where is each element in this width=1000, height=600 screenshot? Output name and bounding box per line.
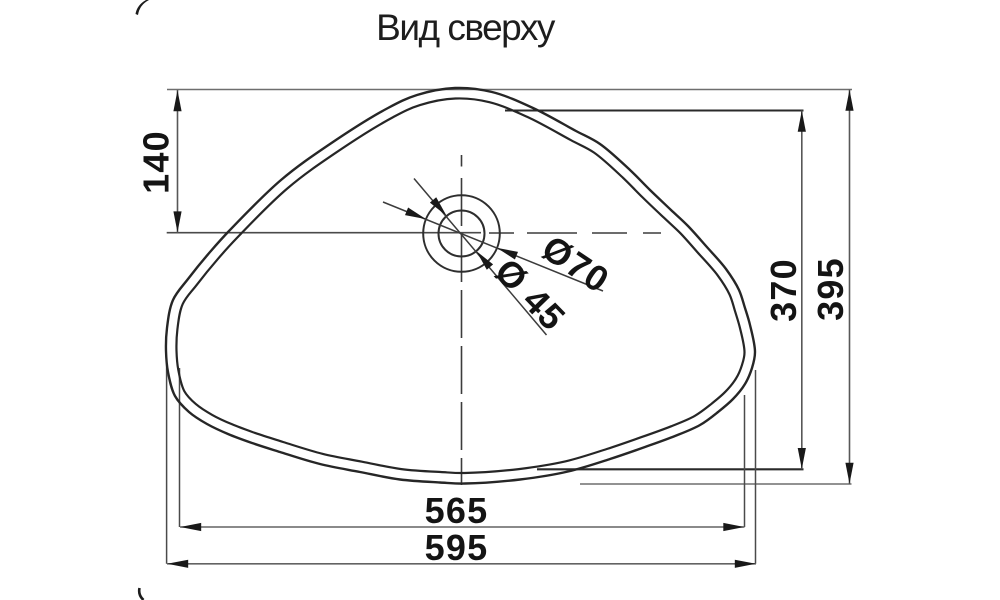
svg-text:395: 395 xyxy=(810,257,851,321)
svg-text:565: 565 xyxy=(425,490,489,531)
svg-text:140: 140 xyxy=(136,130,177,194)
svg-text:595: 595 xyxy=(425,527,489,568)
svg-text:370: 370 xyxy=(763,258,804,322)
